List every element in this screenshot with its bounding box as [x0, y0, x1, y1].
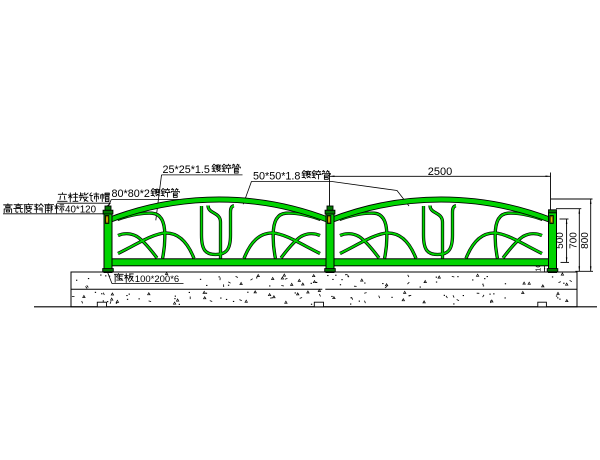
- svg-text:2500: 2500: [428, 166, 452, 178]
- svg-text:700: 700: [568, 232, 579, 249]
- svg-text:80*80*2: 80*80*2: [112, 188, 150, 200]
- svg-text:800: 800: [580, 232, 591, 249]
- svg-text:50*50*1.8: 50*50*1.8: [253, 170, 300, 182]
- svg-text:25*25*1.5: 25*25*1.5: [163, 164, 210, 176]
